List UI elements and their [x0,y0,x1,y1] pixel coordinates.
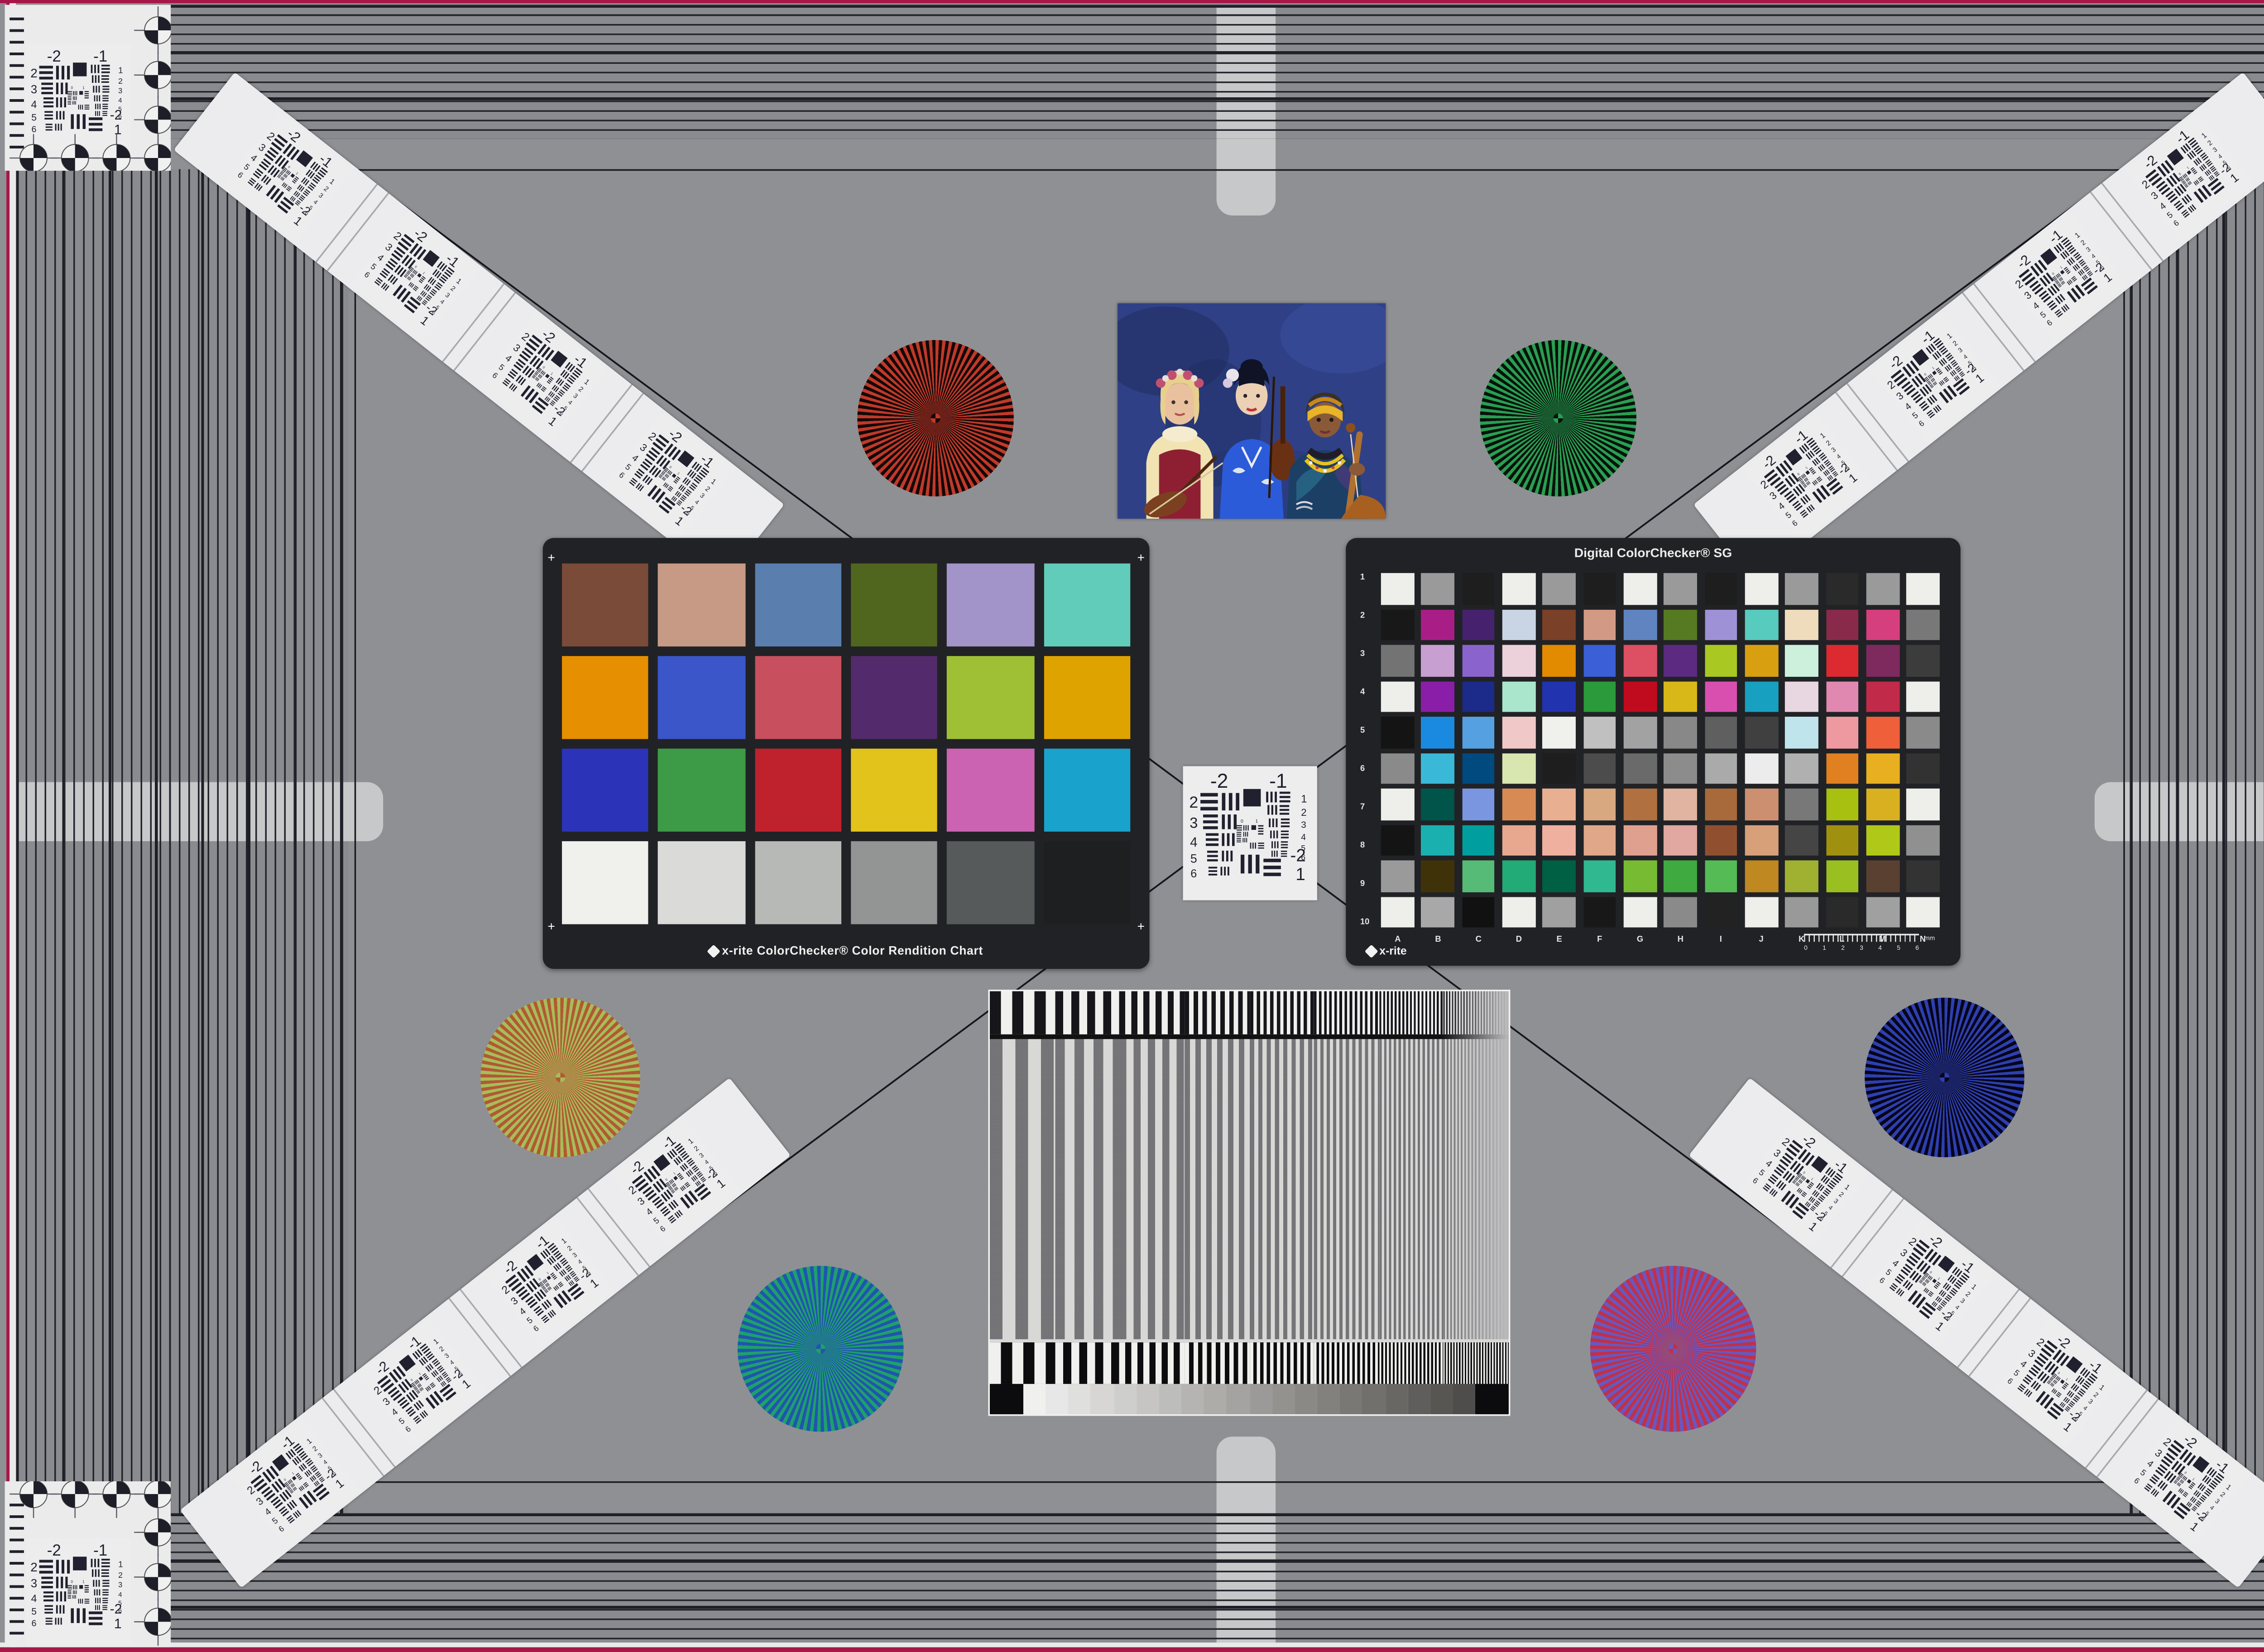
siemens-star-red-black [857,340,1014,497]
wedge-step [1317,1384,1340,1414]
cc24-patch [851,749,938,832]
sg-col-label: A [1381,935,1415,945]
sg-patch [1745,573,1778,604]
sg-patch [1462,609,1495,640]
cc24-patch [851,564,938,646]
sg-patch [1381,681,1414,712]
sweep-segment [1185,1342,1249,1384]
sg-patch [1421,752,1454,784]
sg-patch [1381,860,1414,891]
sg-patch [1866,824,1899,856]
alignment-tab-left [16,782,383,841]
sg-patch [1745,789,1778,820]
center-usaf-target [1183,766,1317,900]
inner-frame-line-top [355,168,2124,170]
sg-patch [1381,717,1414,748]
sg-patch [1826,645,1859,676]
star-center-mark [556,1073,565,1082]
sg-patch [1906,645,1939,676]
sg-patch [1745,860,1778,891]
sg-patch [1502,860,1535,891]
sg-patch [1623,717,1656,748]
sg-patch [1866,573,1899,604]
wedge-step [1159,1384,1182,1414]
sweep-segment [1055,1039,1119,1339]
sg-patch [1583,860,1616,891]
siemens-star-blue-black [1865,998,2024,1158]
wedge-step [1227,1384,1249,1414]
sg-patch [1906,609,1939,640]
sweep-segment [1444,1342,1509,1384]
sg-patch [1664,860,1697,891]
ruler-number: 3 [1860,943,1863,952]
edge-line-magenta-bottom [0,1647,2264,1652]
sweep-segment [990,1342,1055,1384]
sg-patch [1583,573,1616,604]
frequency-sweep-chart [990,991,1509,1414]
sg-mm-ruler: 0123456 mm [1804,934,1935,953]
sg-patch [1623,860,1656,891]
cc24-patch [947,564,1034,646]
sg-patch [1664,752,1697,784]
wedge-black-block-left [990,1384,1023,1414]
sg-patch [1826,789,1859,820]
sweep-segment [1379,1342,1444,1384]
sg-patch [1623,824,1656,856]
sg-patch [1664,789,1697,820]
corner-cross: + [547,919,555,934]
sweep-segment [1379,1039,1444,1339]
sg-col-label: F [1583,935,1616,945]
sweep-segment [1119,1039,1184,1339]
sg-patch [1664,573,1697,604]
wedge-step [1204,1384,1227,1414]
cc24-patch [851,656,938,739]
wedge-step [1069,1384,1091,1414]
sg-patch [1583,896,1616,928]
sg-title-label: Digital ColorChecker® SG [1346,546,1960,560]
sg-patch [1785,609,1818,640]
sg-patch [1704,609,1737,640]
wedge-steps [1023,1384,1475,1414]
sg-patch [1583,681,1616,712]
colorchecker-24-patches [562,564,1130,924]
cc24-patch [947,841,1034,924]
corner-panel-top-left [5,5,171,171]
cc24-patch [1044,656,1131,739]
sg-row-label: 5 [1360,726,1369,736]
ruler-number: 5 [1897,943,1900,952]
wedge-step [1181,1384,1204,1414]
ruler-ticks [1804,934,1919,942]
sg-patch [1664,824,1697,856]
sg-patch [1583,645,1616,676]
sg-patch [1462,681,1495,712]
sg-patch [1543,645,1576,676]
cc24-patch [851,841,938,924]
sweep-right-fade [1442,991,1509,1340]
sg-patch [1704,860,1737,891]
sg-patch [1704,896,1737,928]
sg-patch [1785,789,1818,820]
sg-row-label: 6 [1360,765,1369,774]
wedge-step [1385,1384,1408,1414]
sg-patch [1583,752,1616,784]
alignment-tab-bottom [1217,1437,1276,1647]
border-stripes-left [16,169,348,1513]
siemens-star-green-black [1480,340,1636,497]
wedge-step [1340,1384,1362,1414]
sg-patch [1543,789,1576,820]
wedge-step [1362,1384,1385,1414]
sg-col-label: D [1502,935,1535,945]
cc24-patch [1044,564,1131,646]
xrite-logo-icon [1365,945,1378,958]
sweep-segment [1379,991,1444,1034]
sweep-segment [1185,991,1249,1034]
sg-patch [1421,681,1454,712]
sg-patch [1502,609,1535,640]
cc24-patch [658,656,745,739]
sg-patch [1664,681,1697,712]
sg-col-label: C [1462,935,1495,945]
sg-patch [1785,896,1818,928]
sg-patch [1543,752,1576,784]
sg-patch [1826,860,1859,891]
sg-patch [1623,789,1656,820]
sg-patch [1704,573,1737,604]
sg-patch [1462,645,1495,676]
sg-patch [1381,896,1414,928]
sg-patch [1785,645,1818,676]
cc24-patch [947,656,1034,739]
sg-patch [1543,573,1576,604]
sg-patch [1381,609,1414,640]
corner-cross: + [547,551,555,565]
wedge-step [1430,1384,1453,1414]
border-stripes-bottom [169,1513,2264,1647]
sg-row-label: 10 [1360,918,1369,927]
sg-patch [1623,645,1656,676]
sg-row-label: 2 [1360,611,1369,621]
sg-patch [1866,752,1899,784]
cc24-patch [1044,841,1131,924]
xrite-brand-label: x-rite [1379,947,1406,958]
sg-patch [1866,645,1899,676]
sg-patch [1381,789,1414,820]
sg-patch [1543,681,1576,712]
ruler-number: 4 [1878,943,1882,952]
te42-camera-test-chart: x-rite ColorChecker® Color Rendition Cha… [0,0,2264,1652]
sg-patch [1745,681,1778,712]
sg-patch [1462,789,1495,820]
sg-patch [1462,896,1495,928]
sg-patch [1623,609,1656,640]
sg-patch [1785,752,1818,784]
sg-patch [1583,717,1616,748]
gray-step-wedge [990,1384,1509,1414]
sg-patch [1543,609,1576,640]
sg-patch [1421,645,1454,676]
sweep-divider-line [990,1034,1509,1039]
border-stripes-right [2130,169,2264,1513]
sweep-segment [1185,1039,1249,1339]
sg-patch [1583,824,1616,856]
sg-patch [1502,896,1535,928]
star-center-mark [931,413,940,423]
sg-row-label: 3 [1360,650,1369,659]
sg-patch [1583,789,1616,820]
wedge-step [1046,1384,1069,1414]
sg-patch [1502,573,1535,604]
sg-patch [1502,752,1535,784]
ruler-number: 1 [1823,943,1826,952]
sg-patch [1421,573,1454,604]
cc24-patch [658,564,745,646]
wedge-step [1453,1384,1475,1414]
sg-patch [1906,681,1939,712]
ruler-unit-label: mm [1924,934,1935,942]
sg-patch [1462,860,1495,891]
sg-patch [1826,896,1859,928]
edge-line-magenta-left [6,0,10,1652]
sg-patch [1785,717,1818,748]
sg-patch [1785,824,1818,856]
sg-patch [1866,789,1899,820]
sg-row-labels: 12345678910 [1360,573,1369,928]
alignment-tab-right [2095,782,2264,841]
wedge-step [1295,1384,1317,1414]
cc24-patch [754,749,841,832]
xrite-brand-label: x-rite [722,943,753,958]
cc24-title-label: ColorChecker® Color Rendition Chart [757,943,983,958]
sg-patch [1462,717,1495,748]
cc24-patch [562,749,649,832]
sg-patch [1462,573,1495,604]
sweep-square-wave-top [990,991,1509,1034]
sg-patch [1866,896,1899,928]
sg-patch [1502,789,1535,820]
ruler-number: 6 [1915,943,1919,952]
sweep-segment [1249,991,1314,1034]
sg-patch [1826,609,1859,640]
sg-patch [1866,860,1899,891]
sg-patch [1543,860,1576,891]
border-stripes-top [169,5,2264,139]
cc24-patch [562,656,649,739]
sg-patch [1745,896,1778,928]
star-center-mark [1554,413,1563,423]
sg-patch [1502,645,1535,676]
sg-patch [1745,645,1778,676]
sg-patch [1421,824,1454,856]
sweep-segment [1055,1342,1119,1384]
sg-patch [1745,609,1778,640]
sg-row-label: 1 [1360,573,1369,583]
ruler-number: 2 [1841,943,1845,952]
sweep-segment [1119,1342,1184,1384]
colorchecker-sg-chart: Digital ColorChecker® SG 12345678910 ABC… [1346,538,1960,966]
sg-row-label: 7 [1360,803,1369,812]
sweep-segment [1119,991,1184,1034]
star-center-mark [1940,1073,1949,1082]
cc24-patch [754,656,841,739]
wedge-step [1114,1384,1137,1414]
sg-patch [1906,896,1939,928]
cc24-patch [1044,749,1131,832]
inner-frame-line-bottom [355,1481,2124,1483]
sg-patch [1704,752,1737,784]
wedge-step [1272,1384,1295,1414]
sg-patch [1866,717,1899,748]
sg-patch [1421,789,1454,820]
cc24-patch [658,749,745,832]
wedge-step [1091,1384,1114,1414]
sg-patch [1623,573,1656,604]
sg-patch [1866,609,1899,640]
sg-patch [1826,573,1859,604]
ruler-number: 0 [1804,943,1808,952]
sg-patch [1543,717,1576,748]
sg-row-label: 8 [1360,841,1369,851]
sweep-segment [1314,1342,1379,1384]
sg-patch [1785,860,1818,891]
sg-patch [1502,717,1535,748]
sg-patch [1664,717,1697,748]
ruler-numbers: 0123456 [1804,943,1919,952]
inner-frame-line-right [2123,204,2125,1446]
wedge-step [1137,1384,1159,1414]
sg-col-label: E [1543,935,1576,945]
sweep-square-wave-bottom [990,1342,1509,1384]
siemens-star-green-blue [738,1266,904,1432]
sg-patch [1704,789,1737,820]
sg-patch [1664,609,1697,640]
sg-patch [1664,645,1697,676]
sg-patch [1866,681,1899,712]
sg-patch [1381,573,1414,604]
sweep-sine-area [990,1039,1509,1339]
sg-patch [1381,824,1414,856]
cc24-patch [754,841,841,924]
sg-col-label: H [1664,935,1697,945]
sg-row-label: 4 [1360,688,1369,698]
cc24-patch [658,841,745,924]
sg-patch [1906,789,1939,820]
siemens-star-red-blue [1590,1266,1756,1432]
sg-row-label: 9 [1360,880,1369,889]
sg-patch [1785,681,1818,712]
sg-patch [1421,609,1454,640]
sweep-segment [1249,1342,1314,1384]
edge-line-white-bottom [0,1642,2264,1647]
sg-patch [1381,752,1414,784]
sweep-segment [1314,1039,1379,1339]
alignment-tab-top [1217,5,1276,215]
sweep-segment [990,1039,1055,1339]
sg-col-label: J [1745,935,1778,945]
sweep-segment [990,991,1055,1034]
edge-line-white-left [10,0,16,1652]
star-center-mark [1668,1344,1678,1354]
sg-patch [1502,681,1535,712]
sg-patch [1381,645,1414,676]
sg-patch [1623,681,1656,712]
colorchecker-24-chart: x-rite ColorChecker® Color Rendition Cha… [543,538,1150,969]
sg-col-label: I [1704,935,1737,945]
sg-patch [1745,717,1778,748]
sg-patch [1664,896,1697,928]
sg-patch [1906,824,1939,856]
sg-patch [1421,717,1454,748]
sg-patch [1906,860,1939,891]
edge-line-magenta-top [0,0,2264,2]
corner-cross: + [1137,551,1145,565]
corner-cross: + [1137,919,1145,934]
sg-patch [1623,896,1656,928]
portrait-photo [1118,303,1386,519]
sweep-segment [1249,1039,1314,1339]
corner-panel-bottom-left [5,1481,171,1647]
sg-patch [1906,752,1939,784]
sg-patch [1421,896,1454,928]
siemens-star-red-green [480,998,640,1158]
sg-patch [1826,717,1859,748]
sg-patch [1704,681,1737,712]
sg-patch [1543,824,1576,856]
xrite-logo-icon [707,944,721,958]
sg-patches [1381,573,1940,928]
cc24-patch [754,564,841,646]
sg-patch [1704,645,1737,676]
sweep-segment [1314,991,1379,1034]
wedge-black-block-right [1475,1384,1509,1414]
star-center-mark [816,1344,825,1354]
sg-patch [1623,752,1656,784]
sg-patch [1745,752,1778,784]
wedge-step [1249,1384,1272,1414]
sg-patch [1462,752,1495,784]
sg-patch [1583,609,1616,640]
sg-col-label: B [1421,935,1455,945]
sg-patch [1906,573,1939,604]
sg-patch [1906,717,1939,748]
cc24-patch [947,749,1034,832]
sweep-segment [1055,991,1119,1034]
cc24-patch [562,841,649,924]
sg-patch [1826,681,1859,712]
sg-patch [1421,860,1454,891]
sg-patch [1462,824,1495,856]
wedge-step [1408,1384,1430,1414]
sg-patch [1745,824,1778,856]
sg-xrite-logo: x-rite [1367,947,1407,958]
colorchecker-24-caption: x-rite ColorChecker® Color Rendition Cha… [543,943,1150,958]
sg-patch [1704,824,1737,856]
wedge-step [1023,1384,1046,1414]
sg-patch [1704,717,1737,748]
sg-patch [1826,752,1859,784]
inner-frame-line-left [354,204,355,1446]
sg-patch [1826,824,1859,856]
cc24-patch [562,564,649,646]
sg-col-label: G [1623,935,1657,945]
sg-patch [1543,896,1576,928]
sg-patch [1785,573,1818,604]
sg-patch [1502,824,1535,856]
